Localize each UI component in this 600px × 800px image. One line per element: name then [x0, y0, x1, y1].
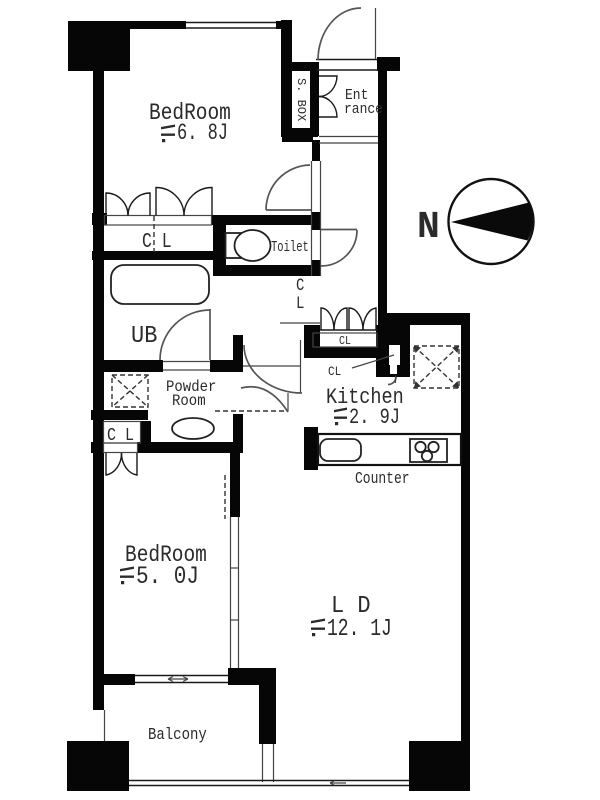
svg-text:12. 1J: 12. 1J — [327, 616, 392, 643]
svg-text:6. 8J: 6. 8J — [177, 121, 228, 147]
svg-text:CL: CL — [339, 335, 351, 348]
svg-text:C L: C L — [142, 229, 172, 254]
svg-text:S. BOX: S. BOX — [294, 78, 308, 121]
svg-text:Room: Room — [172, 391, 206, 410]
svg-text:N: N — [417, 206, 440, 249]
svg-text:Toilet: Toilet — [271, 238, 309, 255]
svg-text:L: L — [296, 294, 304, 314]
svg-text:UB: UB — [131, 322, 157, 349]
svg-text:C L: C L — [107, 426, 134, 447]
svg-text:2. 9J: 2. 9J — [349, 405, 400, 430]
svg-text:5. 0J: 5. 0J — [136, 563, 199, 591]
svg-text:Counter: Counter — [355, 471, 410, 489]
svg-text:C: C — [296, 276, 304, 296]
svg-text:Balcony: Balcony — [148, 725, 207, 745]
svg-text:CL: CL — [328, 364, 341, 379]
svg-text:rance: rance — [344, 101, 383, 118]
